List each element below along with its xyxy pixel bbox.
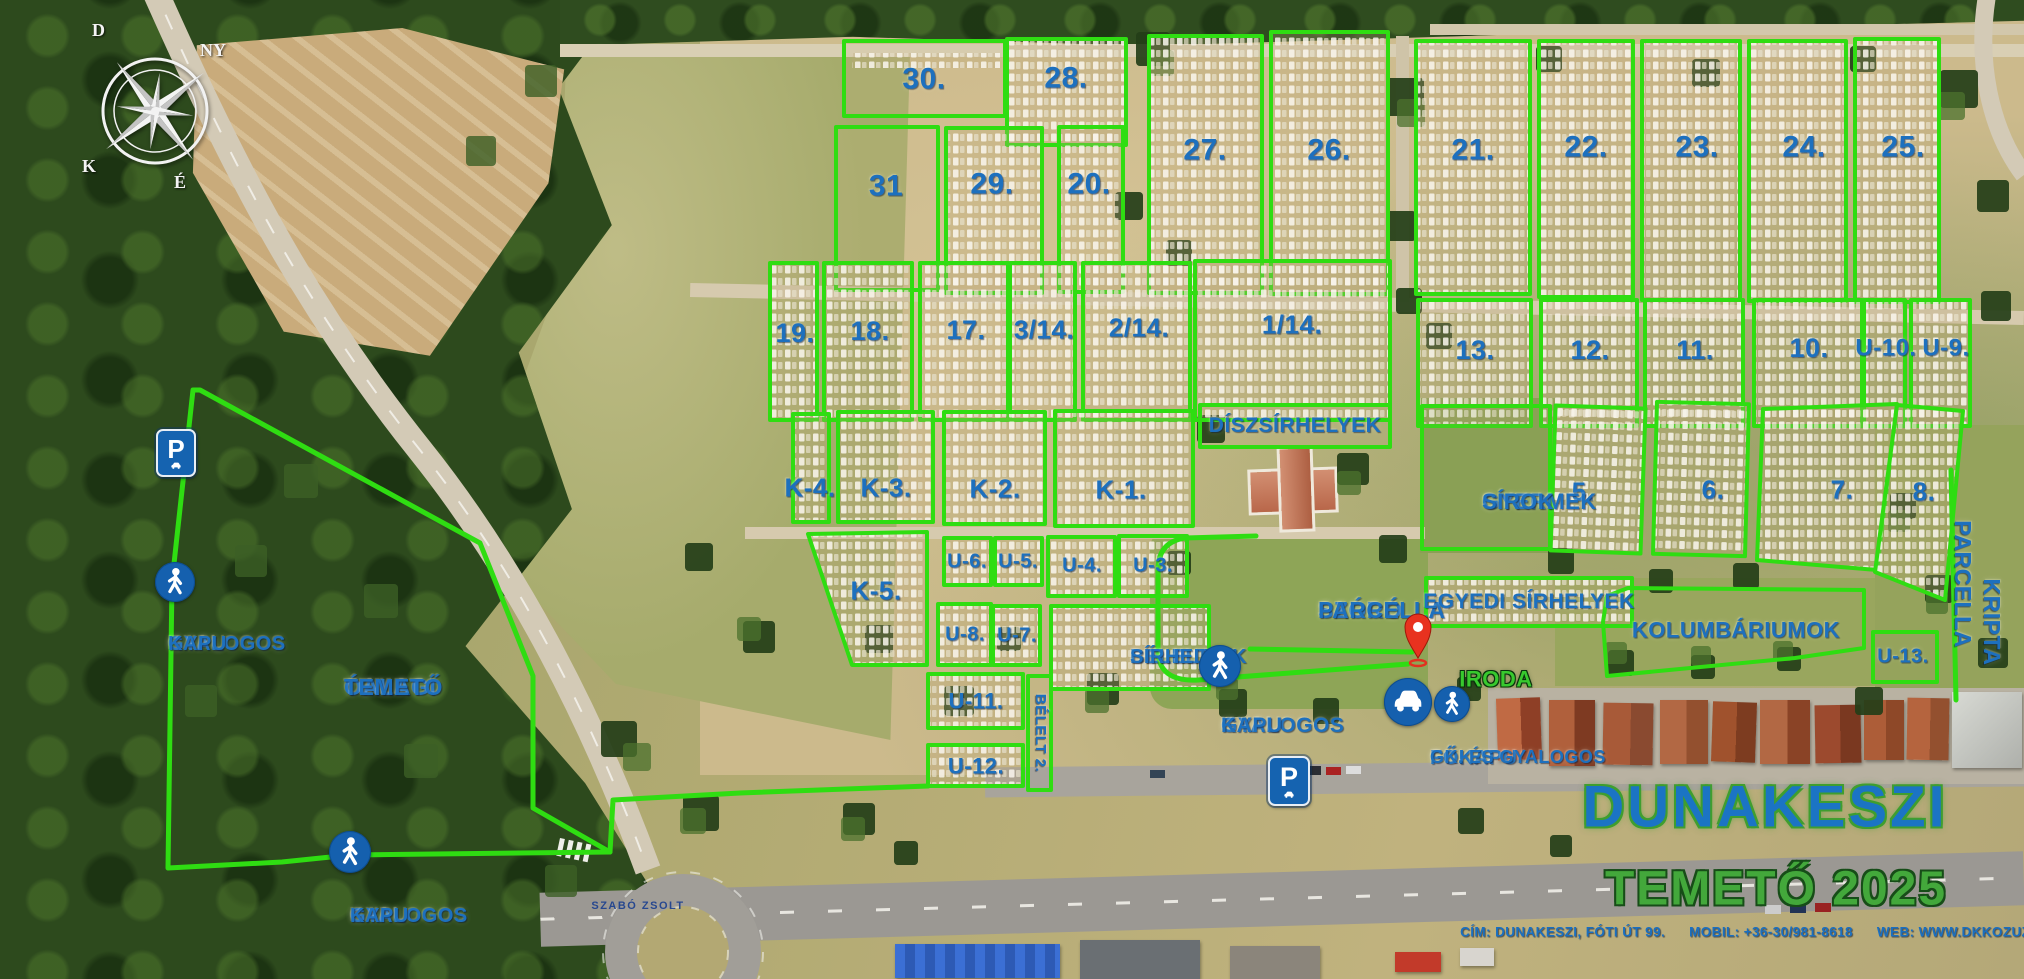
parcel-label-u6: U-6.: [947, 552, 987, 573]
pedestrian-gate-mid-icon: [1199, 645, 1241, 687]
kripta-label-line1: KRIPTA: [1980, 579, 2004, 666]
parcel-label-u7: U-7.: [997, 626, 1037, 647]
parcel-label-k2: K-2.: [969, 475, 1020, 502]
parcel-label-k1: K-1.: [1095, 476, 1146, 503]
parcel-label-26: 26.: [1307, 134, 1350, 166]
parcel-label-22: 22.: [1564, 131, 1607, 163]
car-icon: [1389, 683, 1427, 721]
walking-person-icon: [332, 834, 368, 870]
gyermek-sirok-box: [1422, 406, 1550, 549]
car-gate-icon: [1384, 678, 1432, 726]
gyalogos-mid-line2: KAPU: [1221, 715, 1283, 737]
kripta-label-line2: PARCELLA: [1951, 520, 1975, 648]
parcel-label-2-14: 2/14.: [1109, 314, 1169, 341]
parking-letter: P: [167, 436, 184, 462]
parcel-label-u11: U-11.: [948, 689, 1003, 712]
parcel-1-14: [1195, 261, 1390, 420]
watermark: SZABÓ ZSOLT: [591, 901, 684, 913]
oalagi-line2: TEMETŐ: [344, 675, 443, 699]
parcel-23: [1642, 41, 1740, 300]
parcel-label-13: 13.: [1455, 336, 1494, 364]
parcel-label-8: 8.: [1913, 478, 1936, 505]
cemetery-map: 30. 28. 27. 26. 21. 22. 23. 24. 25. 31 2…: [0, 0, 2024, 979]
parcel-5: [1551, 405, 1646, 553]
parcel-22: [1539, 41, 1633, 297]
parcel-label-6: 6.: [1702, 476, 1725, 503]
walking-person-icon: [158, 565, 192, 599]
parcel-label-u5: U-5.: [998, 552, 1038, 573]
parcel-label-11: 11.: [1676, 336, 1714, 364]
location-pin-icon: [1398, 608, 1438, 670]
compass-letter-e: É: [174, 172, 186, 193]
parcel-label-24: 24.: [1782, 131, 1825, 163]
parcel-label-k3: K-3.: [860, 474, 911, 501]
contact-address: CÍM: DUNAKESZI, FÓTI ÚT 99.: [1460, 925, 1665, 940]
parcel-label-u12: U-12.: [948, 754, 1004, 777]
gyalogos-left-line2: KAPU: [168, 634, 227, 655]
parcel-k4: [793, 414, 829, 522]
parcel-label-30: 30.: [902, 63, 945, 95]
parcel-25: [1855, 39, 1939, 302]
walking-person-icon: [1437, 689, 1467, 719]
pedestrian-main-gate-icon: [1434, 686, 1470, 722]
parcel-24: [1749, 41, 1846, 301]
parcel-label-18: 18.: [850, 317, 889, 345]
parcel-k2: [944, 412, 1045, 524]
parcel-label-k4: K-4.: [784, 474, 835, 501]
parcel-label-28: 28.: [1044, 62, 1087, 94]
boundary-connector: [610, 786, 928, 852]
parking-sign-mid: P: [1268, 756, 1310, 806]
parcel-label-12: 12.: [1570, 336, 1609, 364]
belelt2-label: BÉLELT 2.: [1032, 694, 1048, 772]
gyalogos-bottom-line2: KAPU: [350, 906, 409, 927]
parcel-label-3-14: 3/14.: [1014, 316, 1074, 343]
parcel-7: [1757, 404, 1897, 570]
parcel-label-u13: U-13.: [1877, 647, 1928, 668]
parcel-label-31: 31: [869, 170, 903, 202]
diszsirhelyek-label: DÍSZSÍRHELYEK: [1209, 415, 1382, 437]
contact-web: WEB: WWW.DKKOZUZEMI.HU: [1877, 925, 2024, 940]
gyermek-line2: SÍROK: [1482, 490, 1554, 513]
parcel-k3: [838, 412, 933, 522]
parcel-label-10: 10.: [1789, 334, 1828, 362]
walking-person-icon: [1202, 648, 1238, 684]
kolumbariumok-label: KOLUMBÁRIUMOK: [1632, 618, 1840, 641]
iroda-label: IRODA: [1459, 667, 1532, 690]
pedestrian-gate-left-icon: [155, 562, 195, 602]
compass-letter-ny: NY: [200, 40, 226, 61]
parcel-label-23: 23.: [1675, 131, 1718, 163]
parcel-label-20: 20.: [1067, 168, 1110, 200]
office-pin: [1398, 608, 1438, 670]
parcel-label-k5: K-5.: [850, 577, 901, 604]
parcel-label-u10: U-10.: [1855, 335, 1916, 360]
contact-mobile: MOBIL: +36-30/981-8618: [1689, 925, 1853, 940]
map-title-subtitle: TEMETŐ 2025: [1605, 862, 1947, 917]
parcel-label-19: 19.: [775, 319, 814, 347]
parcel-label-29: 29.: [970, 168, 1013, 200]
parcel-label-1-14: 1/14.: [1262, 311, 1322, 338]
map-title-city: DUNAKESZI: [1582, 774, 1947, 841]
compass-letter-k: K: [82, 156, 96, 177]
egyedi-sirhelyek-label: EGYEDI SÍRHELYEK: [1423, 591, 1634, 613]
car-icon: [168, 462, 184, 470]
contact-line: CÍM: DUNAKESZI, FÓTI ÚT 99.MOBIL: +36-30…: [1460, 925, 2024, 940]
parcel-label-u3: U-3.: [1133, 556, 1173, 577]
compass-rose: D NY K É: [70, 8, 240, 203]
parcel-label-25: 25.: [1881, 131, 1924, 163]
boundary-to-office: [1250, 649, 1412, 652]
parcel-label-17: 17.: [946, 316, 985, 344]
pedestrian-gate-bottom-icon: [329, 831, 371, 873]
car-icon: [1281, 791, 1297, 799]
compass-letter-d: D: [92, 20, 105, 41]
parcel-k1: [1055, 411, 1193, 526]
fokapu-line2: GK. ÉS GYALOGOS: [1430, 748, 1606, 767]
parcel-label-21: 21.: [1451, 134, 1494, 166]
parking-letter: P: [1280, 764, 1298, 791]
parcel-21: [1416, 41, 1530, 294]
parcel-label-u4: U-4.: [1062, 556, 1102, 577]
parcel-label-7: 7.: [1831, 476, 1854, 503]
parcel-label-u9: U-9.: [1922, 335, 1969, 360]
parking-sign-left: P: [156, 429, 196, 477]
parcel-label-u8: U-8.: [945, 625, 985, 646]
oalagi-temeto-boundary: [168, 390, 610, 868]
parcel-label-27: 27.: [1183, 134, 1226, 166]
